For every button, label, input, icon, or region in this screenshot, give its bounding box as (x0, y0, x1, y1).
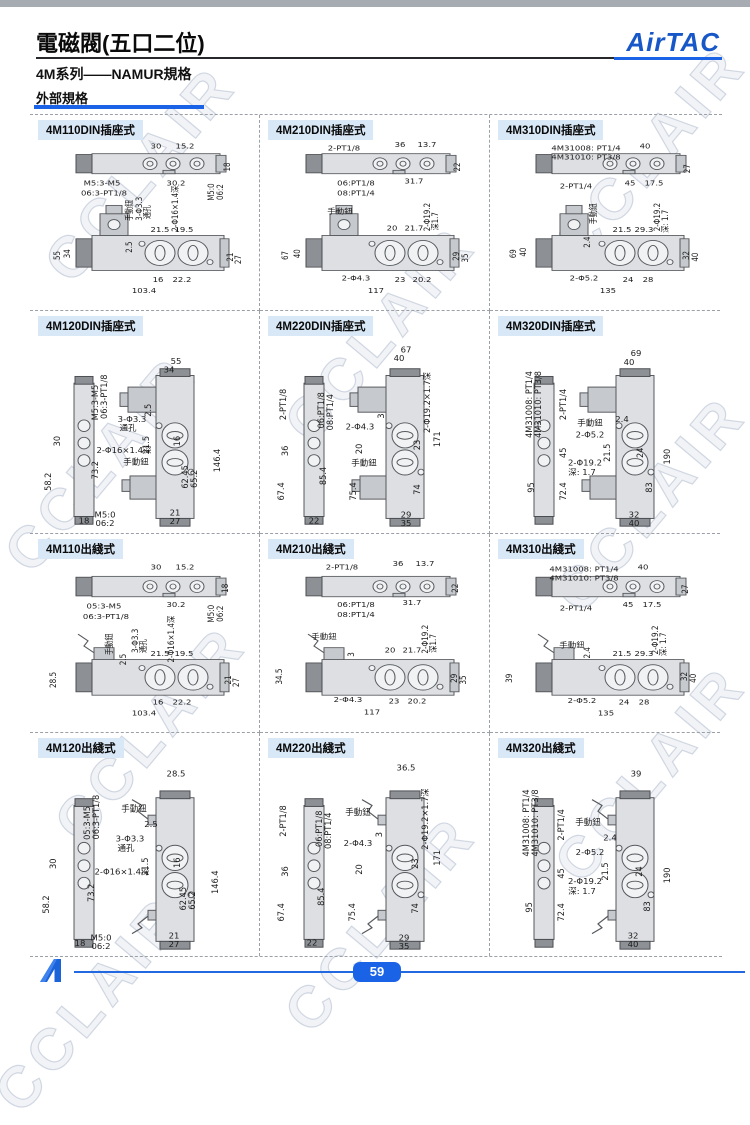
panel-4M320DIN插座式: 4M320DIN插座式4M31008: PT1/44M31010: PT3/82… (490, 311, 720, 534)
drawing-shape (599, 241, 605, 246)
drawing-shape (418, 670, 428, 685)
dimension-label: 05:3-M5 (87, 602, 122, 610)
drawing-shape (437, 260, 443, 265)
dimension-label: 2-PT1/4 (558, 389, 568, 420)
dimension-label: 72.4 (558, 482, 568, 500)
dimension-label: 190 (662, 449, 672, 465)
drawing-shape (78, 634, 94, 653)
dimension-label: 95 (526, 482, 536, 492)
dimension-label: 19.5 (175, 650, 194, 658)
dimension-label: 28 (643, 276, 654, 284)
dimension-label: 171 (432, 431, 442, 447)
drawing-shape (160, 791, 190, 799)
dimension-label: 23 (389, 697, 400, 705)
dimension-label: 30 (151, 142, 162, 150)
dimension-label: 27 (680, 585, 690, 594)
dimension-label: 手動鈕 (121, 803, 147, 813)
dimension-label: 36 (395, 141, 406, 149)
dimension-label: 2-PT1/8 (326, 563, 358, 571)
dimension-label: 22.2 (173, 698, 192, 706)
dimension-label: 深1.7 (428, 634, 438, 653)
dimension-label: 83 (642, 901, 652, 911)
dimension-label: 39 (631, 768, 642, 778)
drawing-shape (393, 170, 405, 173)
drawing-shape (620, 369, 650, 377)
dimension-label: 117 (368, 287, 384, 295)
dimension-label: 85.4 (318, 467, 328, 485)
drawing-shape (108, 220, 120, 230)
dimension-label: 2.5 (143, 404, 153, 417)
drawing-shape (582, 480, 590, 492)
dimension-label: 06:3-PT1/8 (99, 374, 109, 419)
dimension-label: 4M31008: PT1/4 (549, 565, 618, 573)
dimension-label: 146.4 (210, 870, 220, 894)
drawing-shape (305, 799, 323, 807)
dimension-label: 3 (376, 413, 386, 418)
technical-drawing: M5:3-M506:3-PT1/83058.273.218M5:006:2553… (30, 333, 258, 531)
dimension-label: 20.2 (408, 697, 427, 705)
drawing-shape (400, 161, 406, 166)
drawing-shape (648, 245, 658, 260)
drawing-shape (580, 393, 588, 407)
dimension-label: 40 (640, 142, 651, 150)
drawing-shape (306, 239, 322, 267)
drawing-shape (308, 437, 320, 449)
dimension-label: 20 (354, 864, 364, 874)
dimension-label: 27 (682, 164, 692, 173)
dimension-label: 深1.7 (430, 212, 440, 230)
drawing-shape (648, 469, 654, 475)
drawing-shape (418, 892, 424, 898)
dimension-label: 65.2 (189, 470, 199, 488)
panel-4M220出綫式: 4M220出綫式2-PT1/806:PT1/808:PT1/43667.485.… (260, 733, 490, 956)
drawing-shape (397, 459, 413, 467)
drawing-shape (386, 423, 392, 429)
dimension-label: 06:PT1/8 (337, 179, 375, 187)
drawing-shape (568, 220, 580, 230)
drawing-shape (170, 161, 176, 166)
dimension-label: 36 (280, 866, 290, 876)
drawing-shape (536, 155, 552, 173)
dimension-label: 67 (280, 251, 290, 260)
dimension-label: 18 (222, 163, 232, 172)
drawing-shape (538, 860, 550, 872)
drawing-shape (385, 670, 395, 685)
drawing-shape (76, 577, 92, 596)
dimension-label: 34.5 (274, 668, 284, 684)
dimension-label: 36 (393, 560, 404, 568)
dimension-label: 34 (62, 249, 72, 258)
technical-drawing: 2-PT1/83613.72206:PT1/808:PT1/431.7手動鈕67… (260, 137, 488, 308)
dimension-label: 17.5 (643, 601, 662, 609)
drawing-shape (627, 881, 643, 889)
dimension-label: 21.5 (151, 650, 170, 658)
dimension-label: 171 (432, 850, 442, 866)
drawing-shape (390, 369, 420, 377)
dimension-label: 67.4 (276, 903, 286, 921)
dimension-label: 40 (688, 674, 698, 683)
drawing-shape (378, 910, 386, 920)
drawing-shape (566, 205, 582, 213)
dimension-label: 2-PT1/8 (278, 805, 288, 836)
dimension-label: 13.7 (416, 560, 435, 568)
dimension-label: 2-Φ4.3 (342, 274, 371, 282)
dimension-label: 21.7 (403, 646, 422, 654)
dimension-label: 40 (292, 249, 302, 258)
drawing-shape (400, 584, 406, 589)
dimension-label: 72.4 (556, 903, 566, 921)
drawing-shape (588, 387, 616, 412)
dimension-label: 45 (556, 868, 566, 878)
drawing-shape (350, 393, 358, 407)
drawing-shape (378, 815, 386, 825)
drawing-shape (358, 387, 386, 412)
dimension-label: 35 (460, 253, 470, 262)
drawing-shape (78, 420, 90, 432)
panel-title: 4M120出綫式 (38, 738, 124, 758)
dimension-label: 24 (635, 448, 645, 458)
dimension-label: 27 (233, 255, 243, 264)
dimension-label: 深: 1.7 (660, 210, 670, 233)
dimension-label: 40 (629, 518, 640, 528)
drawing-shape (188, 670, 198, 685)
panel-title: 4M120DIN插座式 (38, 316, 143, 336)
panel-4M220DIN插座式: 4M220DIN插座式2-PT1/806:PT1/808:PT1/43667.4… (260, 311, 490, 534)
drawing-shape (308, 860, 320, 872)
drawing-shape (623, 170, 635, 173)
dimension-label: 67.4 (276, 482, 286, 500)
dimension-label: 31.7 (405, 177, 424, 185)
dimension-label: 4M31010: PT3/8 (530, 789, 540, 856)
dimension-label: 手動鈕 (311, 632, 337, 641)
dimension-label: 28 (639, 698, 650, 706)
drawing-shape (654, 584, 660, 589)
dimension-label: 45 (623, 601, 634, 609)
dimension-label: 2-Φ16×1.4深 (94, 867, 149, 877)
drawing-shape (369, 241, 375, 246)
drawing-shape (630, 584, 636, 589)
dimension-label: 2.5 (124, 241, 134, 252)
dimension-label: 2.4 (615, 414, 629, 424)
dimension-label: 08:PT1/4 (337, 189, 375, 197)
dimension-label: 手動鈕 (575, 817, 601, 827)
dimension-label: 29.3 (635, 226, 654, 234)
panel-4M120DIN插座式: 4M120DIN插座式M5:3-M506:3-PT1/83058.273.218… (30, 311, 260, 534)
dimension-label: 2-PT1/8 (278, 389, 288, 420)
dimension-label: 40 (690, 253, 700, 262)
drawing-shape (306, 663, 322, 692)
dimension-label: 2-Φ19.2 (568, 876, 602, 886)
dimension-label: 15.2 (176, 142, 195, 150)
dimension-label: 4M31010: PT3/8 (551, 153, 620, 161)
dimension-label: 06:2 (91, 941, 110, 951)
dimension-label: 23 (395, 276, 406, 284)
dimension-label: 45 (625, 179, 636, 187)
dimension-label: 手動鈕 (351, 457, 377, 467)
drawing-shape (306, 577, 322, 596)
drawing-shape (207, 260, 213, 265)
dimension-label: 2-Φ16×1.4深 (170, 186, 180, 232)
dimension-label: 31.7 (403, 599, 422, 607)
dimension-label: 19.5 (175, 226, 194, 234)
dimension-label: 08:PT1/4 (325, 394, 335, 430)
dimension-label: M5:3-M5 (84, 179, 121, 187)
drawing-shape (616, 845, 622, 851)
drawing-shape (130, 476, 156, 499)
dimension-label: 4M31008: PT1/4 (551, 144, 620, 152)
dimension-label: 手動鈕 (577, 418, 603, 428)
drawing-shape (188, 245, 198, 260)
dimension-label: 15.2 (176, 563, 195, 571)
dimension-label: 85.4 (316, 888, 326, 906)
dimension-label: 通孔 (141, 205, 152, 219)
dimension-label: 2-Φ4.3 (344, 838, 373, 848)
technical-drawing: 3015.21830.205:3-M506:3-PT1/8M5:006:2手動鈕… (30, 556, 258, 730)
dimension-label: 27 (169, 939, 180, 949)
drawing-shape (76, 239, 92, 267)
dimension-label: 23 (410, 858, 420, 868)
drawing-shape (615, 245, 625, 260)
drawing-shape (324, 648, 344, 660)
dimension-label: 2-Φ19.2×1.7深 (422, 372, 432, 433)
panel-title: 4M320出綫式 (498, 738, 584, 758)
dimension-label: 30 (48, 858, 58, 868)
dimension-label: 2-Φ19.2×1.7深 (420, 788, 430, 849)
drawing-shape (590, 476, 616, 499)
dimension-label: 24 (619, 698, 630, 706)
dimension-label: 06:2 (95, 518, 114, 528)
dimension-label: 20 (354, 444, 364, 454)
dimension-label: 深: 1.7 (568, 886, 596, 896)
dimension-label: 通孔 (120, 423, 138, 433)
drawing-shape (148, 910, 156, 920)
drawing-shape (308, 455, 320, 467)
panel-4M120出綫式: 4M120出綫式05:3-M506:3-PT1/83058.273.218M5:… (30, 733, 260, 956)
page-number-badge: 59 (353, 962, 401, 982)
drawing-shape (362, 916, 378, 933)
drawing-shape (607, 161, 613, 166)
dimension-label: 2-PT1/4 (556, 809, 566, 840)
dimension-label: 4M31010: PT3/8 (533, 371, 543, 438)
logo-underline (614, 57, 722, 60)
drawing-shape (393, 593, 405, 596)
dimension-label: 06:2 (215, 184, 225, 200)
dimension-label: 手動鈕 (587, 203, 598, 224)
panel-4M320出綫式: 4M320出綫式4M31008: PT1/44M31010: PT3/82-PT… (490, 733, 720, 956)
drawing-shape (620, 791, 650, 799)
dimension-label: 06:2 (215, 606, 225, 622)
drawing-shape (163, 170, 175, 173)
technical-drawing: 2-PT1/806:PT1/808:PT1/43667.485.42267402… (260, 333, 488, 531)
drawing-shape (536, 663, 552, 692)
panel-title: 4M110出綫式 (38, 539, 123, 559)
panel-title: 4M220DIN插座式 (268, 316, 373, 336)
dimension-label: 手動鈕 (559, 640, 585, 649)
dimension-label: 74 (412, 484, 422, 494)
drawing-shape (397, 432, 413, 440)
dimension-label: 30 (151, 563, 162, 571)
drawing-shape (76, 663, 92, 692)
dimension-label: 3-Φ3.3 (116, 834, 145, 844)
dimension-label: 28.5 (167, 768, 186, 778)
drawing-shape (194, 584, 200, 589)
dimension-label: 06:3-PT1/8 (81, 189, 127, 197)
drawing-shape (535, 939, 553, 947)
panel-title: 4M310出綫式 (498, 539, 584, 559)
drawing-shape (592, 916, 608, 933)
dimension-label: 2-PT1/8 (328, 144, 360, 152)
drawing-shape (536, 239, 552, 267)
drawing-shape (630, 161, 636, 166)
footer-line (74, 971, 745, 973)
dimension-label: 2-Φ5.2 (576, 429, 605, 439)
dimension-label: 2.5 (118, 654, 128, 665)
dimension-label: 20.2 (413, 276, 432, 284)
panel-4M210出綫式: 4M210出綫式2-PT1/83613.72206:PT1/808:PT1/43… (260, 534, 490, 733)
drawing-shape (78, 842, 90, 854)
dimension-label: 40 (624, 357, 635, 367)
dimension-label: 2-Φ16×1.4深 (96, 445, 151, 455)
dimension-label: 36.5 (397, 763, 416, 773)
dimension-label: 36 (280, 446, 290, 456)
dimension-label: 2.4 (582, 236, 592, 247)
drawing-shape (155, 245, 165, 260)
drawing-shape (369, 665, 375, 670)
drawing-shape (627, 854, 643, 862)
dimension-label: 75.4 (348, 482, 358, 500)
dimension-label: 16 (153, 698, 164, 706)
panel-title: 4M210DIN插座式 (268, 120, 373, 140)
dimension-label: 16 (172, 436, 182, 446)
dimension-label: 06:3-PT1/8 (83, 612, 129, 620)
panel-4M110出綫式: 4M110出綫式3015.21830.205:3-M506:3-PT1/8M5:… (30, 534, 260, 733)
technical-drawing: 4M31008: PT1/44M31010: PT3/840272-PT1/44… (490, 137, 718, 308)
technical-drawing: 4M31008: PT1/44M31010: PT3/82-PT1/445957… (490, 755, 718, 954)
dimension-label: 22 (450, 584, 460, 593)
drawing-shape (147, 161, 153, 166)
panel-title: 4M220出綫式 (268, 738, 354, 758)
dimension-label: 3 (374, 832, 384, 837)
drawing-shape (667, 684, 673, 689)
dimension-label: 手動鈕 (123, 200, 134, 221)
technical-drawing: 3015.21830.2M5:3-M506:3-PT1/8M5:006:2手動鈕… (30, 137, 258, 308)
dimension-label: 45 (558, 448, 568, 458)
drawing-shape (156, 423, 162, 429)
dimension-label: 18 (79, 515, 90, 525)
drawing-shape (207, 684, 213, 689)
dimension-label: 2-Φ19.2 (568, 457, 602, 467)
drawing-shape (308, 877, 320, 889)
dimension-label: 13.7 (418, 141, 437, 149)
dimension-label: 30 (52, 436, 62, 446)
technical-drawing: 4M31008: PT1/44M31010: PT3/82-PT1/445957… (490, 333, 718, 531)
drawing-shape (424, 161, 430, 166)
dimension-label: 22 (309, 515, 320, 525)
dimension-label: 24 (623, 276, 634, 284)
dimension-label: 103.4 (132, 287, 156, 295)
dimension-label: 35 (399, 941, 410, 951)
dimension-label: 65.2 (187, 891, 197, 909)
drawing-shape (608, 815, 616, 825)
dimension-label: 2-Φ5.2 (576, 847, 605, 857)
dimension-label: 21.5 (151, 226, 170, 234)
drawing-shape (538, 437, 550, 449)
dimension-label: 深: 1.7 (568, 467, 596, 477)
dimension-label: 2-PT1/4 (560, 182, 592, 190)
dimension-label: 2-Φ4.3 (346, 422, 375, 432)
drawing-shape (78, 455, 90, 467)
drawing-shape (338, 220, 350, 230)
drawing-shape (306, 155, 322, 173)
dimension-label: 16 (153, 276, 164, 284)
drawing-shape (648, 670, 658, 685)
dimension-label: 2-Φ4.3 (334, 696, 363, 704)
dimension-label: 135 (598, 709, 614, 717)
drawing-shape (424, 584, 430, 589)
dimension-label: 2-PT1/4 (560, 604, 592, 612)
dimension-label: 135 (600, 287, 616, 295)
panel-4M310出綫式: 4M310出綫式4M31008: PT1/44M31010: PT3/84027… (490, 534, 720, 733)
dimension-label: 30.2 (167, 601, 186, 609)
drawing-shape (139, 241, 145, 246)
dimension-label: 73.2 (86, 884, 96, 902)
dimension-label: 23 (412, 440, 422, 450)
dimension-label: 20 (387, 224, 398, 232)
dimension-label: 3 (346, 652, 356, 657)
dimension-label: 40 (638, 563, 649, 571)
dimension-label: 146.4 (212, 449, 222, 472)
drawing-shape (305, 376, 323, 384)
dimension-label: 手動鈕 (123, 456, 149, 466)
dimension-label: 74 (410, 903, 420, 913)
dimension-label: 21.5 (602, 444, 612, 462)
airtac-logo: AirTAC (626, 27, 720, 58)
dimension-label: 2.4 (603, 833, 616, 843)
technical-drawing: 05:3-M506:3-PT1/83058.273.218M5:006:228.… (30, 755, 258, 954)
drawing-shape (418, 245, 428, 260)
dimension-label: 27 (170, 516, 181, 526)
drawing-shape (615, 670, 625, 685)
drawing-shape (377, 584, 383, 589)
dimension-label: 手動鈕 (103, 633, 114, 655)
dimension-label: 16 (172, 858, 182, 868)
dimension-label: 34 (164, 365, 175, 375)
drawing-shape (76, 155, 92, 173)
drawing-shape (390, 791, 420, 799)
drawing-shape (538, 877, 550, 889)
dimension-label: 117 (364, 708, 380, 716)
drawing-shape (106, 205, 122, 213)
dimension-label: 55 (52, 251, 62, 260)
dimension-label: 20 (385, 646, 396, 654)
page-title: 電磁閥(五口二位) (36, 26, 205, 58)
dimension-label: 2-Φ5.2 (568, 696, 597, 704)
drawing-shape (654, 161, 660, 166)
dimension-label: 40 (518, 248, 528, 257)
drawing-shape (667, 260, 673, 265)
dimension-label: 18 (220, 584, 230, 593)
dimension-label: 24 (634, 866, 644, 876)
drawing-shape (167, 459, 183, 467)
drawing-shape (607, 584, 613, 589)
drawing-shape (608, 910, 616, 920)
dimension-label: 69 (508, 249, 518, 258)
drawing-shape (78, 860, 90, 872)
technical-drawing: 2-PT1/806:PT1/808:PT1/43667.485.42236.5手… (260, 755, 488, 954)
dimension-label: 08:PT1/4 (323, 812, 333, 849)
dimension-label: 18 (75, 938, 86, 948)
drawing-shape (538, 634, 554, 653)
